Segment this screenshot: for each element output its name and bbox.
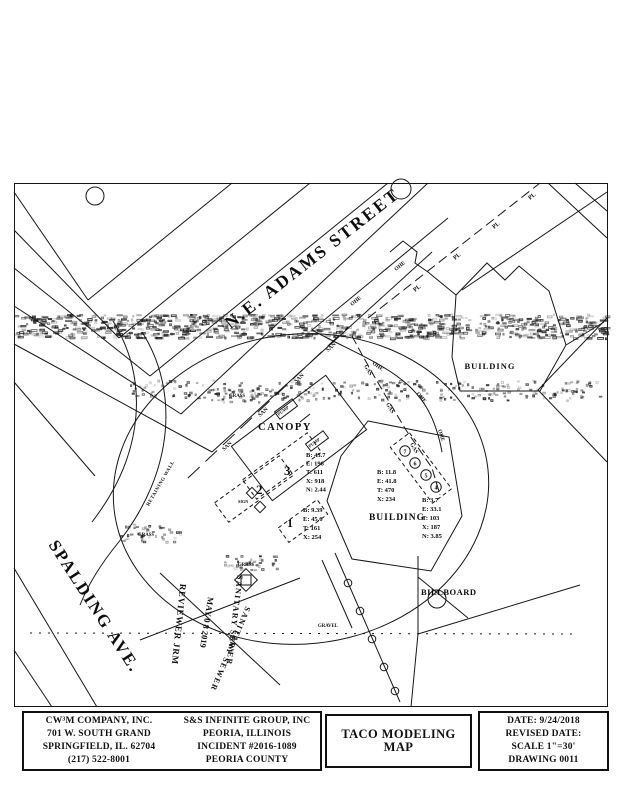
ohe-label: OHE [371, 361, 385, 373]
title-block-drawing-info: DATE: 9/24/2018REVISED DATE:SCALE 1"=30'… [478, 711, 609, 771]
point-number: 5 [425, 474, 428, 480]
tank-number: 3 [284, 463, 291, 478]
adams-street-label: N.E. ADAMS STREET [221, 183, 404, 332]
fence-line [322, 553, 418, 707]
ohe-label: OHE [393, 260, 407, 273]
map-title-text: TACO MODELING MAP [327, 728, 470, 754]
gas-label: GAS [384, 402, 395, 415]
tank-number: 2 [256, 482, 263, 497]
data-block-canopy-east: B: 43.7E: 196T: 611X: 918N: 2.44 [306, 452, 327, 493]
billboard: BILLBOARD [418, 556, 580, 634]
pl-label: PL [412, 284, 422, 293]
tank-number: 1 [287, 516, 293, 530]
title-block-map-title: TACO MODELING MAP [325, 714, 472, 768]
canopy-label: CANOPY [258, 422, 312, 433]
monitoring-points: 7 6 5 4 [390, 433, 451, 503]
building-ne-label: BUILDING [465, 361, 516, 371]
building-main-label: BUILDING [369, 513, 425, 523]
point-number: 7 [404, 450, 407, 456]
title-block-company: CW³M COMPANY, INC.701 W. SOUTH GRANDSPRI… [22, 711, 176, 771]
point-number: 4 [435, 486, 438, 492]
map-drawing: PL PL PL PL SAN SAN SAN SAN OHE OHE OHE … [0, 0, 618, 800]
pl-label: PL [491, 221, 501, 230]
punch-hole-dot [86, 187, 104, 205]
reviewer-stamp: REVIEWER JRM [170, 583, 188, 665]
pump-label: PUMP [276, 405, 290, 417]
pl-label: PL [452, 252, 462, 261]
san-label: SAN [325, 342, 337, 354]
retaining-wall-label: RETAINING WALL [146, 460, 176, 507]
scanned-site-plan: PL PL PL PL SAN SAN SAN SAN OHE OHE OHE … [0, 0, 618, 800]
gravel-label: GRAVEL [318, 624, 338, 629]
pl-label: PL [527, 192, 537, 201]
billboard-label: BILLBOARD [421, 587, 477, 597]
title-block-client: S&S INFINITE GROUP, INCPEORIA, ILLINOISI… [174, 711, 322, 771]
data-block-building-south: B: 3.7E: 33.1T: 103X: 187N: 3.85 [422, 497, 443, 540]
data-block-tank-1: B: 9.39E: 45.6T: 161X: 254 [303, 507, 323, 541]
san-label: SAN [257, 407, 269, 419]
point-number: 6 [414, 462, 417, 468]
data-block-building-west: B: 11.8E: 41.8T: 470X: 234 [377, 469, 397, 503]
sign-label: SIGN [238, 499, 248, 504]
